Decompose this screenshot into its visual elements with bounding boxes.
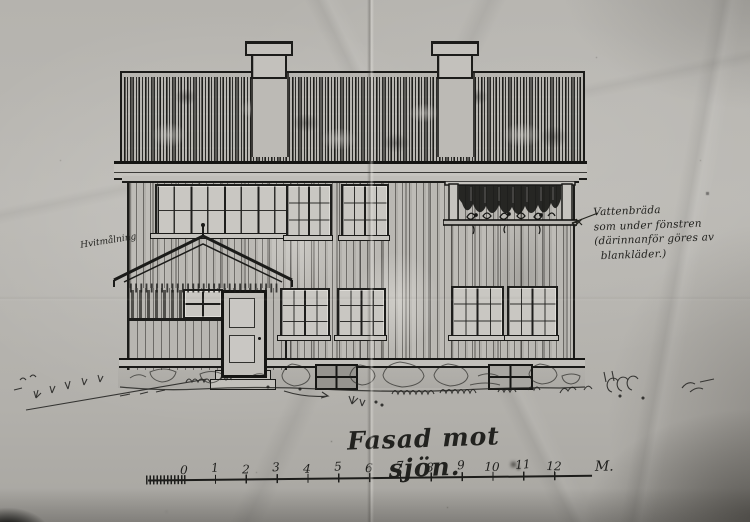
scale-unit-label: M. bbox=[595, 459, 614, 475]
lower-window-4-sill bbox=[504, 335, 559, 341]
scale-label: 3 bbox=[268, 460, 285, 475]
upper-window-1 bbox=[286, 184, 332, 240]
scale-label: 4 bbox=[299, 462, 315, 476]
upper-window-2-sill bbox=[338, 235, 390, 241]
porch-post-shading bbox=[131, 290, 183, 320]
door-lower-panel bbox=[229, 335, 255, 363]
lower-window-4 bbox=[507, 286, 558, 340]
lower-window-3-sill bbox=[448, 335, 505, 341]
entrance-door bbox=[221, 290, 267, 378]
upper-window-1-sill bbox=[283, 235, 333, 241]
paper-specks bbox=[0, 0, 1, 1]
roof-hatching-patches bbox=[124, 77, 581, 164]
scale-label: 12 bbox=[545, 459, 561, 473]
scale-label: 7 bbox=[391, 458, 408, 473]
scale-label: 9 bbox=[453, 458, 470, 473]
cellar-window-1 bbox=[315, 364, 358, 390]
eave-molding bbox=[122, 176, 579, 183]
upper-window-band bbox=[155, 184, 293, 238]
lower-window-2 bbox=[337, 288, 386, 340]
lower-window-3 bbox=[451, 286, 504, 340]
porch-window bbox=[183, 289, 223, 319]
lower-window-1-sill bbox=[277, 335, 331, 341]
upper-window-band-sill bbox=[150, 233, 296, 239]
left-chimney-roof-slot bbox=[251, 73, 289, 157]
scale-label: 1 bbox=[206, 460, 223, 475]
scale-label: 11 bbox=[514, 457, 531, 472]
cellar-window-2 bbox=[488, 364, 533, 390]
scale-bar: 0 1 2 3 4 5 6 7 8 9 10 11 12 M. bbox=[143, 455, 623, 492]
scale-label: 10 bbox=[484, 460, 500, 474]
scale-label: 2 bbox=[237, 462, 253, 476]
upper-window-2 bbox=[341, 184, 389, 240]
right-handwritten-note: Vattenbräda som under fönstren (därinnan… bbox=[593, 201, 731, 264]
door-step-lower bbox=[210, 379, 276, 390]
left-chimney-cap bbox=[245, 41, 293, 56]
scale-label: 6 bbox=[361, 461, 377, 475]
roof bbox=[120, 71, 585, 164]
right-chimney-roof-slot bbox=[437, 73, 475, 157]
right-chimney-cap bbox=[431, 41, 479, 56]
lower-window-2-sill bbox=[334, 335, 387, 341]
lower-window-1 bbox=[280, 288, 330, 340]
photograph-of-architectural-drawing: Fasad mot sjön. Vattenbräda som under fö… bbox=[0, 0, 750, 522]
scale-label: 0 bbox=[176, 463, 192, 477]
scale-label: 5 bbox=[329, 459, 346, 474]
scale-label: 8 bbox=[422, 460, 438, 474]
door-upper-panel bbox=[229, 298, 255, 328]
